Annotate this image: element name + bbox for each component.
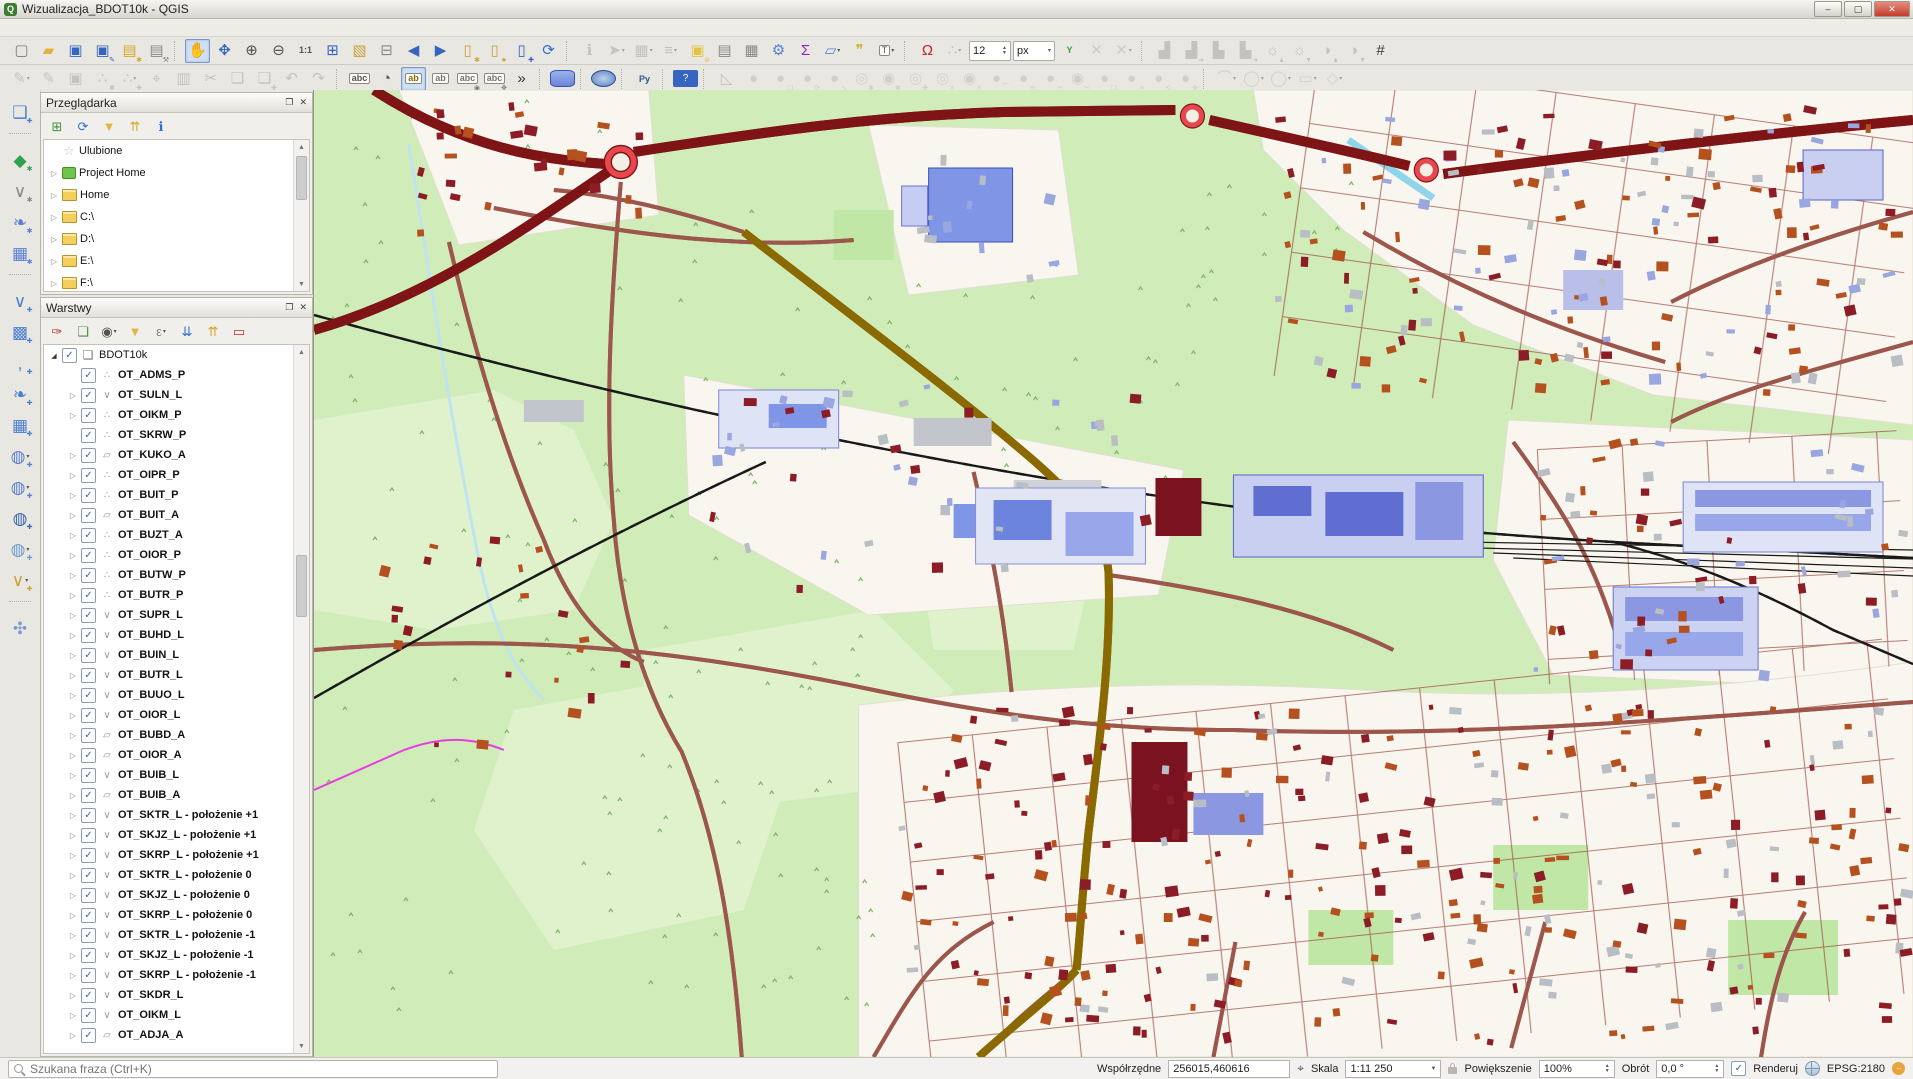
map-themes-button[interactable]: ◉▾ — [98, 320, 120, 342]
expander-icon[interactable] — [68, 551, 78, 560]
layer-labeling-button[interactable]: abc▲▼ — [347, 67, 372, 91]
dropdown-arrow-icon[interactable]: ▾ — [837, 47, 840, 54]
spin-arrows[interactable]: ▲▼ — [1714, 1064, 1719, 1074]
filter-browser-button[interactable]: ▼ — [98, 115, 120, 137]
deselect-all-button[interactable]: ▣▲▼⊘ — [685, 39, 710, 63]
dropdown-arrow-icon[interactable]: ▾ — [1314, 75, 1317, 82]
copy-features-button[interactable]: ❏▲▼ — [225, 67, 250, 91]
browser-item-e[interactable]: E:\ — [44, 250, 294, 272]
measure-button[interactable]: ▱▲▼▾ — [820, 39, 845, 63]
new-geopackage-layer-button[interactable]: ◆✱ — [8, 148, 33, 172]
browser-scrollbar[interactable]: ▲ ▼ — [293, 140, 309, 291]
scroll-up-icon[interactable]: ▲ — [294, 345, 309, 359]
layer-item-ot-skdr-l[interactable]: OT_SKDR_L — [44, 985, 294, 1005]
identify-features-button[interactable]: ℹ▲▼ — [577, 39, 602, 63]
toggle-editing-button[interactable]: ✎▲▼ — [36, 67, 61, 91]
layer-item-ot-oior-p[interactable]: OT_OIOR_P — [44, 545, 294, 565]
menu-item-ustawienia[interactable] — [68, 27, 84, 29]
merge-features-button[interactable]: ●▲▼❏ — [1092, 67, 1117, 91]
layer-item-ot-adja-a[interactable]: OT_ADJA_A — [44, 1025, 294, 1045]
expander-icon[interactable] — [68, 911, 78, 920]
dropdown-arrow-icon[interactable]: ▾ — [1129, 47, 1132, 54]
refresh-button[interactable]: ⟳▲▼ — [536, 39, 561, 63]
properties-widget-button[interactable]: ℹ — [150, 115, 172, 137]
layer-checkbox[interactable] — [81, 648, 96, 663]
expander-icon[interactable] — [49, 213, 59, 222]
select-features-button[interactable]: ▦▲▼▾ — [631, 39, 656, 63]
expander-icon[interactable] — [68, 711, 78, 720]
layer-checkbox[interactable] — [81, 508, 96, 523]
layer-checkbox[interactable] — [81, 588, 96, 603]
new-shapefile-layer-button[interactable]: ∨✱ — [8, 179, 33, 203]
crs-globe-icon[interactable] — [1805, 1061, 1820, 1076]
rotate-point-symbols-button[interactable]: ●▲▼⟲ — [1146, 67, 1171, 91]
zoom-next-button[interactable]: ▶▲▼ — [428, 39, 453, 63]
scrollbar-thumb[interactable] — [296, 156, 307, 200]
expander-icon[interactable] — [49, 235, 59, 244]
delete-selected-button[interactable]: ▥▲▼ — [171, 67, 196, 91]
layer-item-ot-skrp-l-położenie-1[interactable]: OT_SKRP_L - położenie -1 — [44, 965, 294, 985]
extents-toggle-icon[interactable]: ⌖ — [1297, 1061, 1304, 1076]
new-virtual-layer-button[interactable]: ❧✱ — [8, 210, 33, 234]
filter-expression-button[interactable]: ε▾ — [150, 320, 172, 342]
scroll-down-icon[interactable]: ▼ — [294, 1039, 309, 1053]
show-bookmarks-button[interactable]: ▯▲▼★ — [482, 39, 507, 63]
new-report-button[interactable]: ▤▲▼✱ — [117, 39, 142, 63]
simplify-feature-button[interactable]: ●▲▼∿ — [822, 67, 847, 91]
show-hide-labels-button[interactable]: abc▲▼◉ — [455, 67, 480, 91]
expander-icon[interactable] — [68, 751, 78, 760]
dropdown-arrow-icon[interactable]: ▾ — [133, 75, 136, 82]
menu-item-w-internecie[interactable] — [148, 27, 164, 29]
layer-checkbox[interactable] — [81, 1008, 96, 1023]
add-ring-button[interactable]: ◎▲▼✱ — [849, 67, 874, 91]
metasearch-button[interactable]: ▲▼ — [591, 70, 616, 87]
add-mesh-layer-button[interactable]: ▦✚ — [8, 413, 33, 437]
add-delimited-text-layer-button[interactable]: ,✚ — [8, 351, 33, 375]
scroll-up-icon[interactable]: ▲ — [294, 140, 309, 154]
expander-icon[interactable] — [68, 471, 78, 480]
enable-tracing-button[interactable]: Y▲▼ — [1057, 39, 1082, 63]
menu-item-widok[interactable] — [36, 27, 52, 29]
add-vector-layer-button[interactable]: ∨✚ — [8, 289, 33, 313]
spin-arrows[interactable]: ▲▼ — [1002, 46, 1007, 56]
menu-item-wtyczki[interactable] — [84, 27, 100, 29]
menu-item-bazy-danych[interactable] — [132, 27, 148, 29]
layer-item-ot-skrw-p[interactable]: OT_SKRW_P — [44, 425, 294, 445]
add-feature-button[interactable]: ∴▲▼✚▾ — [117, 67, 142, 91]
redo-button[interactable]: ↷▲▼ — [306, 67, 331, 91]
dropdown-arrow-icon[interactable]: ▾ — [114, 328, 117, 335]
expander-icon[interactable] — [68, 571, 78, 580]
minimize-button[interactable]: – — [1814, 1, 1842, 17]
expander-icon[interactable] — [68, 491, 78, 500]
dropdown-arrow-icon[interactable]: ▾ — [26, 484, 29, 491]
expander-icon[interactable] — [68, 931, 78, 940]
layer-item-ot-oior-a[interactable]: OT_OIOR_A — [44, 745, 294, 765]
select-by-value-button[interactable]: ≡▲▼▾ — [658, 39, 683, 63]
layer-checkbox[interactable] — [81, 708, 96, 723]
enable-snapping-button[interactable]: Ω▲▼ — [915, 39, 940, 63]
expand-all-button[interactable]: ⇊ — [176, 320, 198, 342]
menu-item-processing[interactable] — [164, 27, 180, 29]
render-checkbox[interactable] — [1731, 1061, 1746, 1076]
layer-checkbox[interactable] — [81, 548, 96, 563]
expander-icon[interactable] — [68, 851, 78, 860]
layer-item-ot-skjz-l-położenie-1[interactable]: OT_SKJZ_L - położenie -1 — [44, 945, 294, 965]
float-panel-button[interactable]: ❐ — [285, 302, 293, 313]
layer-checkbox[interactable] — [81, 388, 96, 403]
layer-checkbox[interactable] — [81, 608, 96, 623]
split-parts-button[interactable]: ◉▲▼✂ — [1065, 67, 1090, 91]
zoom-full-button[interactable]: ⊞▲▼ — [320, 39, 345, 63]
dropdown-arrow-icon[interactable]: ▾ — [674, 47, 677, 54]
layer-item-ot-oikm-l[interactable]: OT_OIKM_L — [44, 1005, 294, 1025]
ellipse-button[interactable]: ◯▲▼▾ — [1268, 67, 1293, 91]
increase-contrast-button[interactable]: ◑▲▼▲ — [1314, 39, 1339, 63]
move-label-button[interactable]: abc▲▼✥ — [482, 67, 507, 91]
lock-scale-icon[interactable] — [1448, 1067, 1457, 1074]
dropdown-arrow-icon[interactable]: ▾ — [1048, 47, 1051, 54]
menu-item-raster[interactable] — [116, 27, 132, 29]
layer-item-ot-buuo-l[interactable]: OT_BUUO_L — [44, 685, 294, 705]
decrease-contrast-button[interactable]: ◑▲▼▼ — [1341, 39, 1366, 63]
expander-icon[interactable] — [68, 651, 78, 660]
dropdown-arrow-icon[interactable]: ▼ — [1431, 1066, 1437, 1072]
cut-features-button[interactable]: ✂▲▼ — [198, 67, 223, 91]
expander-icon[interactable] — [68, 1011, 78, 1020]
zoom-last-button[interactable]: ◀▲▼ — [401, 39, 426, 63]
snapping-tolerance-spin[interactable]: 12▲▼ — [969, 41, 1011, 61]
decrease-brightness-button[interactable]: ☼▲▼▼ — [1287, 39, 1312, 63]
layer-item-ot-butr-p[interactable]: OT_BUTR_P — [44, 585, 294, 605]
expander-icon[interactable] — [68, 831, 78, 840]
layer-item-ot-skrp-l-położenie-+1[interactable]: OT_SKRP_L - położenie +1 — [44, 845, 294, 865]
spin-arrows[interactable]: ▲▼ — [1605, 1064, 1610, 1074]
layer-item-ot-kuko-a[interactable]: OT_KUKO_A — [44, 445, 294, 465]
scrollbar-thumb[interactable] — [296, 555, 307, 617]
layer-item-ot-skjz-l-położenie-+1[interactable]: OT_SKJZ_L - położenie +1 — [44, 825, 294, 845]
expander-icon[interactable] — [68, 731, 78, 740]
expander-icon[interactable] — [49, 351, 59, 360]
run-feature-action-button[interactable]: ➤▲▼▾ — [604, 39, 629, 63]
fill-ring-button[interactable]: ◎▲▼✚ — [903, 67, 928, 91]
statistical-summary-button[interactable]: ▦▲▼ — [739, 39, 764, 63]
map-grid-button[interactable]: #▲▼ — [1368, 39, 1393, 63]
zoom-out-button[interactable]: ⊖▲▼ — [266, 39, 291, 63]
layer-item-ot-sktr-l-położenie-1[interactable]: OT_SKTR_L - położenie -1 — [44, 925, 294, 945]
rotation-spin[interactable]: 0,0 °▲▼ — [1656, 1060, 1724, 1078]
rectangle-button[interactable]: ▭▲▼▾ — [1295, 67, 1320, 91]
expander-icon[interactable] — [68, 1031, 78, 1040]
layer-checkbox[interactable] — [81, 788, 96, 803]
local-cumulative-stretch-button[interactable]: ▙▲▼ — [1206, 39, 1231, 63]
add-part-button[interactable]: ◉▲▼✱ — [876, 67, 901, 91]
expander-icon[interactable] — [68, 951, 78, 960]
menu-item-projekt[interactable] — [4, 27, 20, 29]
vertex-tool-button[interactable]: ⌖▲▼ — [144, 67, 169, 91]
layer-checkbox[interactable] — [81, 968, 96, 983]
regular-polygon-button[interactable]: ◇▲▼▾ — [1322, 67, 1347, 91]
layer-checkbox[interactable] — [81, 448, 96, 463]
layer-checkbox[interactable] — [81, 368, 96, 383]
layer-checkbox[interactable] — [81, 888, 96, 903]
full-histogram-stretch-button[interactable]: ▟▲▼➜ — [1179, 39, 1204, 63]
layer-item-ot-buzt-a[interactable]: OT_BUZT_A — [44, 525, 294, 545]
dropdown-arrow-icon[interactable]: ▾ — [622, 47, 625, 54]
circular-string-button[interactable]: ⌒▲▼▾ — [1214, 67, 1239, 91]
layer-checkbox[interactable] — [81, 408, 96, 423]
layer-item-ot-sktr-l-położenie-0[interactable]: OT_SKTR_L - położenie 0 — [44, 865, 294, 885]
open-project-button[interactable]: ▰▲▼ — [36, 39, 61, 63]
layer-checkbox[interactable] — [81, 1028, 96, 1043]
layer-item-ot-buin-l[interactable]: OT_BUIN_L — [44, 645, 294, 665]
toolbar-overflow-button[interactable]: »▲▼ — [509, 67, 534, 91]
layer-checkbox[interactable] — [81, 928, 96, 943]
pan-to-selection-button[interactable]: ✥▲▼ — [212, 39, 237, 63]
layer-item-ot-skjz-l-położenie-0[interactable]: OT_SKJZ_L - położenie 0 — [44, 885, 294, 905]
expander-icon[interactable] — [68, 771, 78, 780]
expander-icon[interactable] — [49, 191, 59, 200]
snapping-unit-combo[interactable]: px▲▼▾ — [1013, 41, 1055, 61]
offset-curve-button[interactable]: ●▲▼≋ — [1011, 67, 1036, 91]
layer-checkbox[interactable] — [81, 488, 96, 503]
save-edits-button[interactable]: ▣▲▼ — [63, 67, 88, 91]
zoom-in-button[interactable]: ⊕▲▼ — [239, 39, 264, 63]
dropdown-arrow-icon[interactable]: ▾ — [650, 47, 653, 54]
layer-checkbox[interactable] — [81, 868, 96, 883]
cad-tools-button[interactable]: ◺▲▼ — [714, 67, 739, 91]
layer-checkbox[interactable] — [81, 828, 96, 843]
menu-item-warstwa[interactable] — [52, 27, 68, 29]
layer-checkbox[interactable] — [81, 808, 96, 823]
expander-icon[interactable] — [68, 531, 78, 540]
expander-icon[interactable] — [68, 611, 78, 620]
text-annotation-button[interactable]: T▲▼▾ — [874, 39, 899, 63]
new-project-button[interactable]: ▢▲▼ — [9, 39, 34, 63]
dropdown-arrow-icon[interactable]: ▾ — [1261, 75, 1264, 82]
layer-item-ot-bubd-a[interactable]: OT_BUBD_A — [44, 725, 294, 745]
georeferencer-button[interactable]: ✣ — [8, 616, 33, 640]
layer-checkbox[interactable] — [62, 348, 77, 363]
highlight-pinned-labels-button[interactable]: ab▲▼ — [401, 67, 426, 91]
circle-button[interactable]: ◯▲▼▾ — [1241, 67, 1266, 91]
zoom-to-layer-button[interactable]: ⊟▲▼ — [374, 39, 399, 63]
layer-checkbox[interactable] — [81, 988, 96, 1003]
layer-checkbox[interactable] — [81, 468, 96, 483]
new-bookmark-button[interactable]: ▯▲▼✱ — [455, 39, 480, 63]
expander-icon[interactable] — [68, 791, 78, 800]
move-feature-button[interactable]: ●▲▼ — [741, 67, 766, 91]
expander-icon[interactable] — [68, 511, 78, 520]
browser-item-f[interactable]: F:\ — [44, 272, 294, 291]
dropdown-arrow-icon[interactable]: ▾ — [26, 546, 29, 553]
layer-checkbox[interactable] — [81, 568, 96, 583]
layer-checkbox[interactable] — [81, 668, 96, 683]
save-project-as-button[interactable]: ▣▲▼✎ — [90, 39, 115, 63]
processing-toolbox-button[interactable]: ⚙▲▼ — [766, 39, 791, 63]
layer-item-ot-buib-l[interactable]: OT_BUIB_L — [44, 765, 294, 785]
add-virtual-layer-button[interactable]: ❧✚ — [8, 382, 33, 406]
coords-field[interactable]: 256015,460616 — [1168, 1060, 1290, 1078]
dropdown-arrow-icon[interactable]: ▾ — [26, 453, 29, 460]
menu-item-edycja[interactable] — [20, 27, 36, 29]
expander-icon[interactable] — [68, 391, 78, 400]
layer-checkbox[interactable] — [81, 908, 96, 923]
python-console-button[interactable]: ▲▼ — [632, 67, 657, 91]
dropdown-arrow-icon[interactable]: ▾ — [1339, 75, 1342, 82]
layer-styling-button[interactable]: ✑ — [46, 320, 68, 342]
layer-item-ot-supr-l[interactable]: OT_SUPR_L — [44, 605, 294, 625]
layer-item-ot-buhd-l[interactable]: OT_BUHD_L — [44, 625, 294, 645]
magnifier-spin[interactable]: 100%▲▼ — [1539, 1060, 1615, 1078]
collapse-all-button[interactable]: ⇈ — [202, 320, 224, 342]
reshape-features-button[interactable]: ●▲▼⌒ — [984, 67, 1009, 91]
expander-icon[interactable] — [68, 691, 78, 700]
add-group-button[interactable]: ❏ — [72, 320, 94, 342]
message-log-icon[interactable] — [1892, 1062, 1905, 1075]
browser-item-d[interactable]: D:\ — [44, 228, 294, 250]
expander-icon[interactable] — [68, 991, 78, 1000]
undo-button[interactable]: ↶▲▼ — [279, 67, 304, 91]
paste-features-button[interactable]: ❏▲▼✚ — [252, 67, 277, 91]
layer-checkbox[interactable] — [81, 768, 96, 783]
copy-move-feature-button[interactable]: ●▲▼❏ — [768, 67, 793, 91]
layer-checkbox[interactable] — [81, 728, 96, 743]
show-statistics-button[interactable]: Σ▲▼ — [793, 39, 818, 63]
data-source-manager-button[interactable]: ❏✚ — [8, 100, 33, 124]
increase-brightness-button[interactable]: ☼▲▼▲ — [1260, 39, 1285, 63]
layer-group-bdot10k[interactable]: BDOT10k — [44, 345, 294, 365]
layer-checkbox[interactable] — [81, 748, 96, 763]
zoom-native-button[interactable]: 1:1▲▼ — [293, 39, 318, 63]
dropdown-arrow-icon[interactable]: ▾ — [27, 75, 30, 82]
layers-scrollbar[interactable]: ▲ ▼ — [293, 345, 309, 1053]
layer-checkbox[interactable] — [81, 628, 96, 643]
layer-item-ot-oior-l[interactable]: OT_OIOR_L — [44, 705, 294, 725]
filter-legend-button[interactable]: ▼ — [124, 320, 146, 342]
map-tips-button[interactable]: ❞▲▼ — [847, 39, 872, 63]
zoom-to-selection-button[interactable]: ▧▲▼ — [347, 39, 372, 63]
layer-item-ot-adms-p[interactable]: OT_ADMS_P — [44, 365, 294, 385]
add-spatialite-layer-button[interactable]: ◍✚▾ — [8, 475, 33, 499]
expander-icon[interactable] — [68, 631, 78, 640]
expander-icon[interactable] — [68, 591, 78, 600]
map-canvas[interactable] — [313, 90, 1913, 1057]
refresh-browser-button[interactable]: ⟳ — [72, 115, 94, 137]
digitize-points-button[interactable]: ∴▲▼✱ — [90, 67, 115, 91]
snapping-mode-button[interactable]: ∴▲▼▾ — [942, 39, 967, 63]
dropdown-arrow-icon[interactable]: ▾ — [958, 47, 961, 54]
layer-checkbox[interactable] — [81, 948, 96, 963]
crs-value[interactable]: EPSG:2180 — [1827, 1063, 1885, 1075]
add-wms-layer-button[interactable]: ◍✚ — [8, 506, 33, 530]
layer-item-ot-skrp-l-położenie-0[interactable]: OT_SKRP_L - położenie 0 — [44, 905, 294, 925]
db-manager-button[interactable]: ▲▼ — [550, 70, 575, 87]
layer-checkbox[interactable] — [81, 688, 96, 703]
dropdown-arrow-icon[interactable]: ▾ — [163, 328, 166, 335]
menu-item-wektor[interactable] — [100, 27, 116, 29]
offset-point-symbol-button[interactable]: ●▲▼✥ — [1173, 67, 1198, 91]
layer-checkbox[interactable] — [81, 428, 96, 443]
expander-icon[interactable] — [49, 279, 59, 288]
layer-checkbox[interactable] — [81, 848, 96, 863]
current-edits-button[interactable]: ✎▲▼▾ — [9, 67, 34, 91]
help-button[interactable]: ▲▼ — [673, 70, 698, 87]
layer-item-ot-buit-a[interactable]: OT_BUIT_A — [44, 505, 294, 525]
locator-search[interactable] — [8, 1060, 498, 1078]
layer-item-ot-butr-l[interactable]: OT_BUTR_L — [44, 665, 294, 685]
expander-icon[interactable] — [49, 257, 59, 266]
remove-layer-button[interactable]: ▭ — [228, 320, 250, 342]
open-attribute-table-button[interactable]: ▤▲▼ — [712, 39, 737, 63]
pin-unpin-labels-button[interactable]: ab▲▼ — [428, 67, 453, 91]
layer-item-ot-oipr-p[interactable]: OT_OIPR_P — [44, 465, 294, 485]
delete-ring-button[interactable]: ◎▲▼✕ — [930, 67, 955, 91]
layer-item-ot-sktr-l-położenie-+1[interactable]: OT_SKTR_L - położenie +1 — [44, 805, 294, 825]
close-button[interactable]: ✕ — [1874, 1, 1910, 17]
avoid-intersections-button[interactable]: ✕▲▼ — [1084, 39, 1109, 63]
search-input[interactable] — [28, 1061, 492, 1077]
browser-item-project-home[interactable]: Project Home — [44, 162, 294, 184]
split-features-button[interactable]: ●▲▼✂ — [1038, 67, 1063, 91]
scale-combo[interactable]: 1:11 250▼ — [1345, 1060, 1441, 1078]
pan-map-button[interactable]: ✋▲▼ — [185, 39, 210, 63]
dropdown-arrow-icon[interactable]: ▾ — [25, 577, 28, 584]
add-postgis-layer-button[interactable]: ◍✚▾ — [8, 444, 33, 468]
collapse-browser-button[interactable]: ⇈ — [124, 115, 146, 137]
expander-icon[interactable] — [68, 671, 78, 680]
layer-checkbox[interactable] — [81, 528, 96, 543]
layer-diagram-button[interactable]: ◔▲▼ — [374, 67, 399, 91]
full-cumulative-stretch-button[interactable]: ▙▲▼➜ — [1233, 39, 1258, 63]
expander-icon[interactable] — [68, 811, 78, 820]
add-vector-tile-layer-button[interactable]: ∨✚▾ — [8, 568, 33, 592]
rotate-feature-button[interactable]: ●▲▼⟳ — [795, 67, 820, 91]
snapping-options-button[interactable]: ✕▲▼▾ — [1111, 39, 1136, 63]
expander-icon[interactable] — [68, 451, 78, 460]
new-memory-layer-button[interactable]: ▦✱ — [8, 241, 33, 265]
expander-icon[interactable] — [49, 169, 59, 178]
layer-item-ot-butw-p[interactable]: OT_BUTW_P — [44, 565, 294, 585]
local-histogram-stretch-button[interactable]: ▟▲▼ — [1152, 39, 1177, 63]
project-properties-button[interactable]: ▤▲▼⚒ — [144, 39, 169, 63]
bookmark-manager-button[interactable]: ▯▲▼✚ — [509, 39, 534, 63]
merge-attributes-button[interactable]: ●▲▼≡ — [1119, 67, 1144, 91]
close-panel-button[interactable]: ✕ — [299, 302, 307, 313]
close-panel-button[interactable]: ✕ — [299, 97, 307, 108]
expander-icon[interactable] — [68, 891, 78, 900]
expander-icon[interactable] — [68, 411, 78, 420]
browser-item-ulubione[interactable]: Ulubione — [44, 140, 294, 162]
scroll-down-icon[interactable]: ▼ — [294, 277, 309, 291]
maximize-button[interactable]: ▢ — [1844, 1, 1872, 17]
save-project-button[interactable]: ▣▲▼ — [63, 39, 88, 63]
dropdown-arrow-icon[interactable]: ▾ — [1288, 75, 1291, 82]
layer-item-ot-buib-a[interactable]: OT_BUIB_A — [44, 785, 294, 805]
browser-item-home[interactable]: Home — [44, 184, 294, 206]
add-selected-layers-button[interactable]: ⊞ — [46, 115, 68, 137]
float-panel-button[interactable]: ❐ — [285, 97, 293, 108]
dropdown-arrow-icon[interactable]: ▾ — [891, 47, 894, 54]
expander-icon[interactable] — [68, 871, 78, 880]
delete-part-button[interactable]: ◉▲▼✕ — [957, 67, 982, 91]
menu-item-pomoc[interactable] — [180, 27, 196, 29]
add-raster-layer-button[interactable]: ▩✚ — [8, 320, 33, 344]
expander-icon[interactable] — [68, 971, 78, 980]
layer-item-ot-buit-p[interactable]: OT_BUIT_P — [44, 485, 294, 505]
add-wfs-layer-button[interactable]: ◍✚▾ — [8, 537, 33, 561]
